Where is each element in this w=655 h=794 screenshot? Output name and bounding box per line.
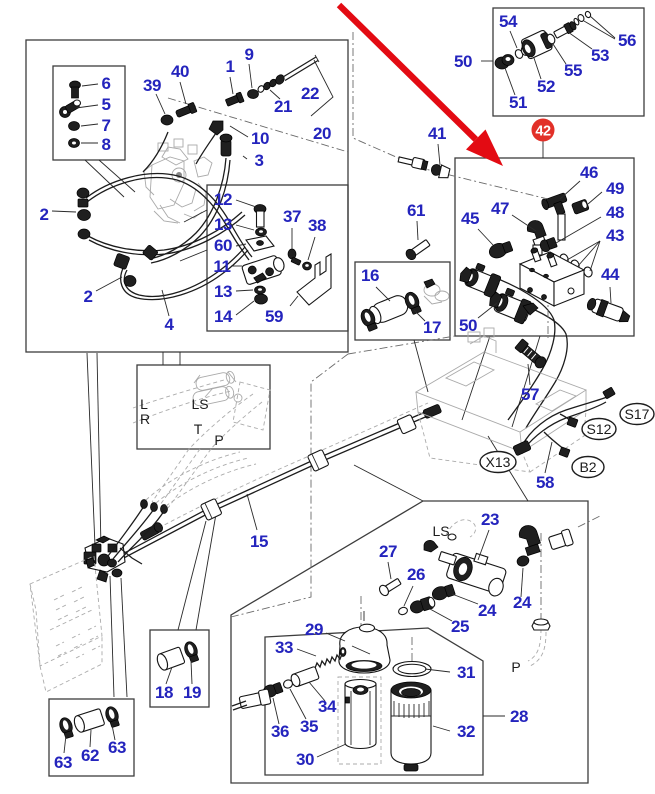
svg-text:57: 57: [521, 385, 539, 404]
svg-text:51: 51: [509, 93, 527, 112]
svg-text:13: 13: [214, 282, 232, 301]
svg-text:S12: S12: [587, 421, 612, 437]
svg-text:X13: X13: [486, 454, 511, 470]
svg-text:43: 43: [606, 226, 624, 245]
svg-text:39: 39: [143, 76, 161, 95]
svg-text:58: 58: [536, 473, 554, 492]
svg-text:7: 7: [101, 116, 110, 135]
svg-text:24: 24: [513, 593, 532, 612]
svg-text:26: 26: [407, 565, 425, 584]
svg-text:44: 44: [601, 265, 620, 284]
svg-text:46: 46: [580, 163, 598, 182]
svg-text:6: 6: [101, 74, 110, 93]
svg-text:45: 45: [461, 209, 479, 228]
svg-text:2: 2: [39, 205, 48, 224]
svg-text:13: 13: [214, 215, 232, 234]
svg-text:62: 62: [81, 746, 99, 765]
svg-text:63: 63: [54, 753, 72, 772]
svg-text:38: 38: [308, 216, 326, 235]
svg-text:16: 16: [361, 266, 379, 285]
svg-text:L: L: [140, 396, 148, 412]
svg-text:19: 19: [183, 683, 201, 702]
svg-text:59: 59: [265, 307, 283, 326]
svg-text:P: P: [214, 432, 223, 448]
svg-text:37: 37: [283, 207, 301, 226]
svg-text:50: 50: [459, 316, 477, 335]
svg-text:5: 5: [101, 95, 110, 114]
svg-text:LS: LS: [191, 396, 208, 412]
svg-text:32: 32: [457, 722, 475, 741]
svg-text:27: 27: [379, 542, 397, 561]
svg-text:22: 22: [301, 84, 319, 103]
svg-text:18: 18: [155, 683, 173, 702]
svg-text:25: 25: [451, 617, 469, 636]
svg-text:LS: LS: [432, 523, 449, 539]
svg-text:40: 40: [171, 62, 189, 81]
svg-text:8: 8: [101, 135, 110, 154]
svg-text:10: 10: [251, 129, 269, 148]
svg-text:24: 24: [478, 601, 497, 620]
svg-text:34: 34: [318, 697, 337, 716]
svg-text:B2: B2: [579, 459, 596, 475]
svg-text:9: 9: [244, 45, 253, 64]
svg-text:33: 33: [275, 638, 293, 657]
svg-text:42: 42: [535, 124, 551, 140]
svg-text:2: 2: [83, 287, 92, 306]
svg-text:53: 53: [591, 46, 609, 65]
svg-text:31: 31: [457, 663, 475, 682]
svg-text:50: 50: [454, 52, 472, 71]
svg-text:S17: S17: [625, 406, 650, 422]
svg-text:11: 11: [213, 257, 230, 276]
svg-text:55: 55: [564, 61, 582, 80]
svg-text:56: 56: [618, 31, 636, 50]
svg-text:14: 14: [214, 307, 233, 326]
svg-text:47: 47: [491, 199, 509, 218]
svg-text:48: 48: [606, 203, 624, 222]
svg-text:52: 52: [537, 77, 555, 96]
svg-text:P: P: [511, 659, 520, 675]
svg-text:63: 63: [108, 738, 126, 757]
svg-text:21: 21: [274, 97, 292, 116]
svg-text:R: R: [140, 411, 150, 427]
svg-text:15: 15: [250, 532, 268, 551]
svg-text:17: 17: [423, 318, 441, 337]
svg-text:61: 61: [407, 201, 425, 220]
svg-text:20: 20: [313, 124, 331, 143]
svg-text:36: 36: [271, 722, 289, 741]
svg-text:29: 29: [305, 620, 323, 639]
svg-text:28: 28: [510, 707, 528, 726]
svg-text:35: 35: [300, 717, 318, 736]
svg-text:T: T: [194, 421, 203, 437]
svg-text:60: 60: [214, 236, 232, 255]
svg-text:1: 1: [225, 57, 234, 76]
svg-text:3: 3: [254, 151, 263, 170]
svg-text:49: 49: [606, 179, 624, 198]
svg-text:54: 54: [499, 12, 518, 31]
svg-text:4: 4: [164, 315, 174, 334]
svg-text:12: 12: [214, 190, 232, 209]
svg-text:30: 30: [296, 750, 314, 769]
svg-text:23: 23: [481, 510, 499, 529]
svg-text:41: 41: [428, 124, 446, 143]
